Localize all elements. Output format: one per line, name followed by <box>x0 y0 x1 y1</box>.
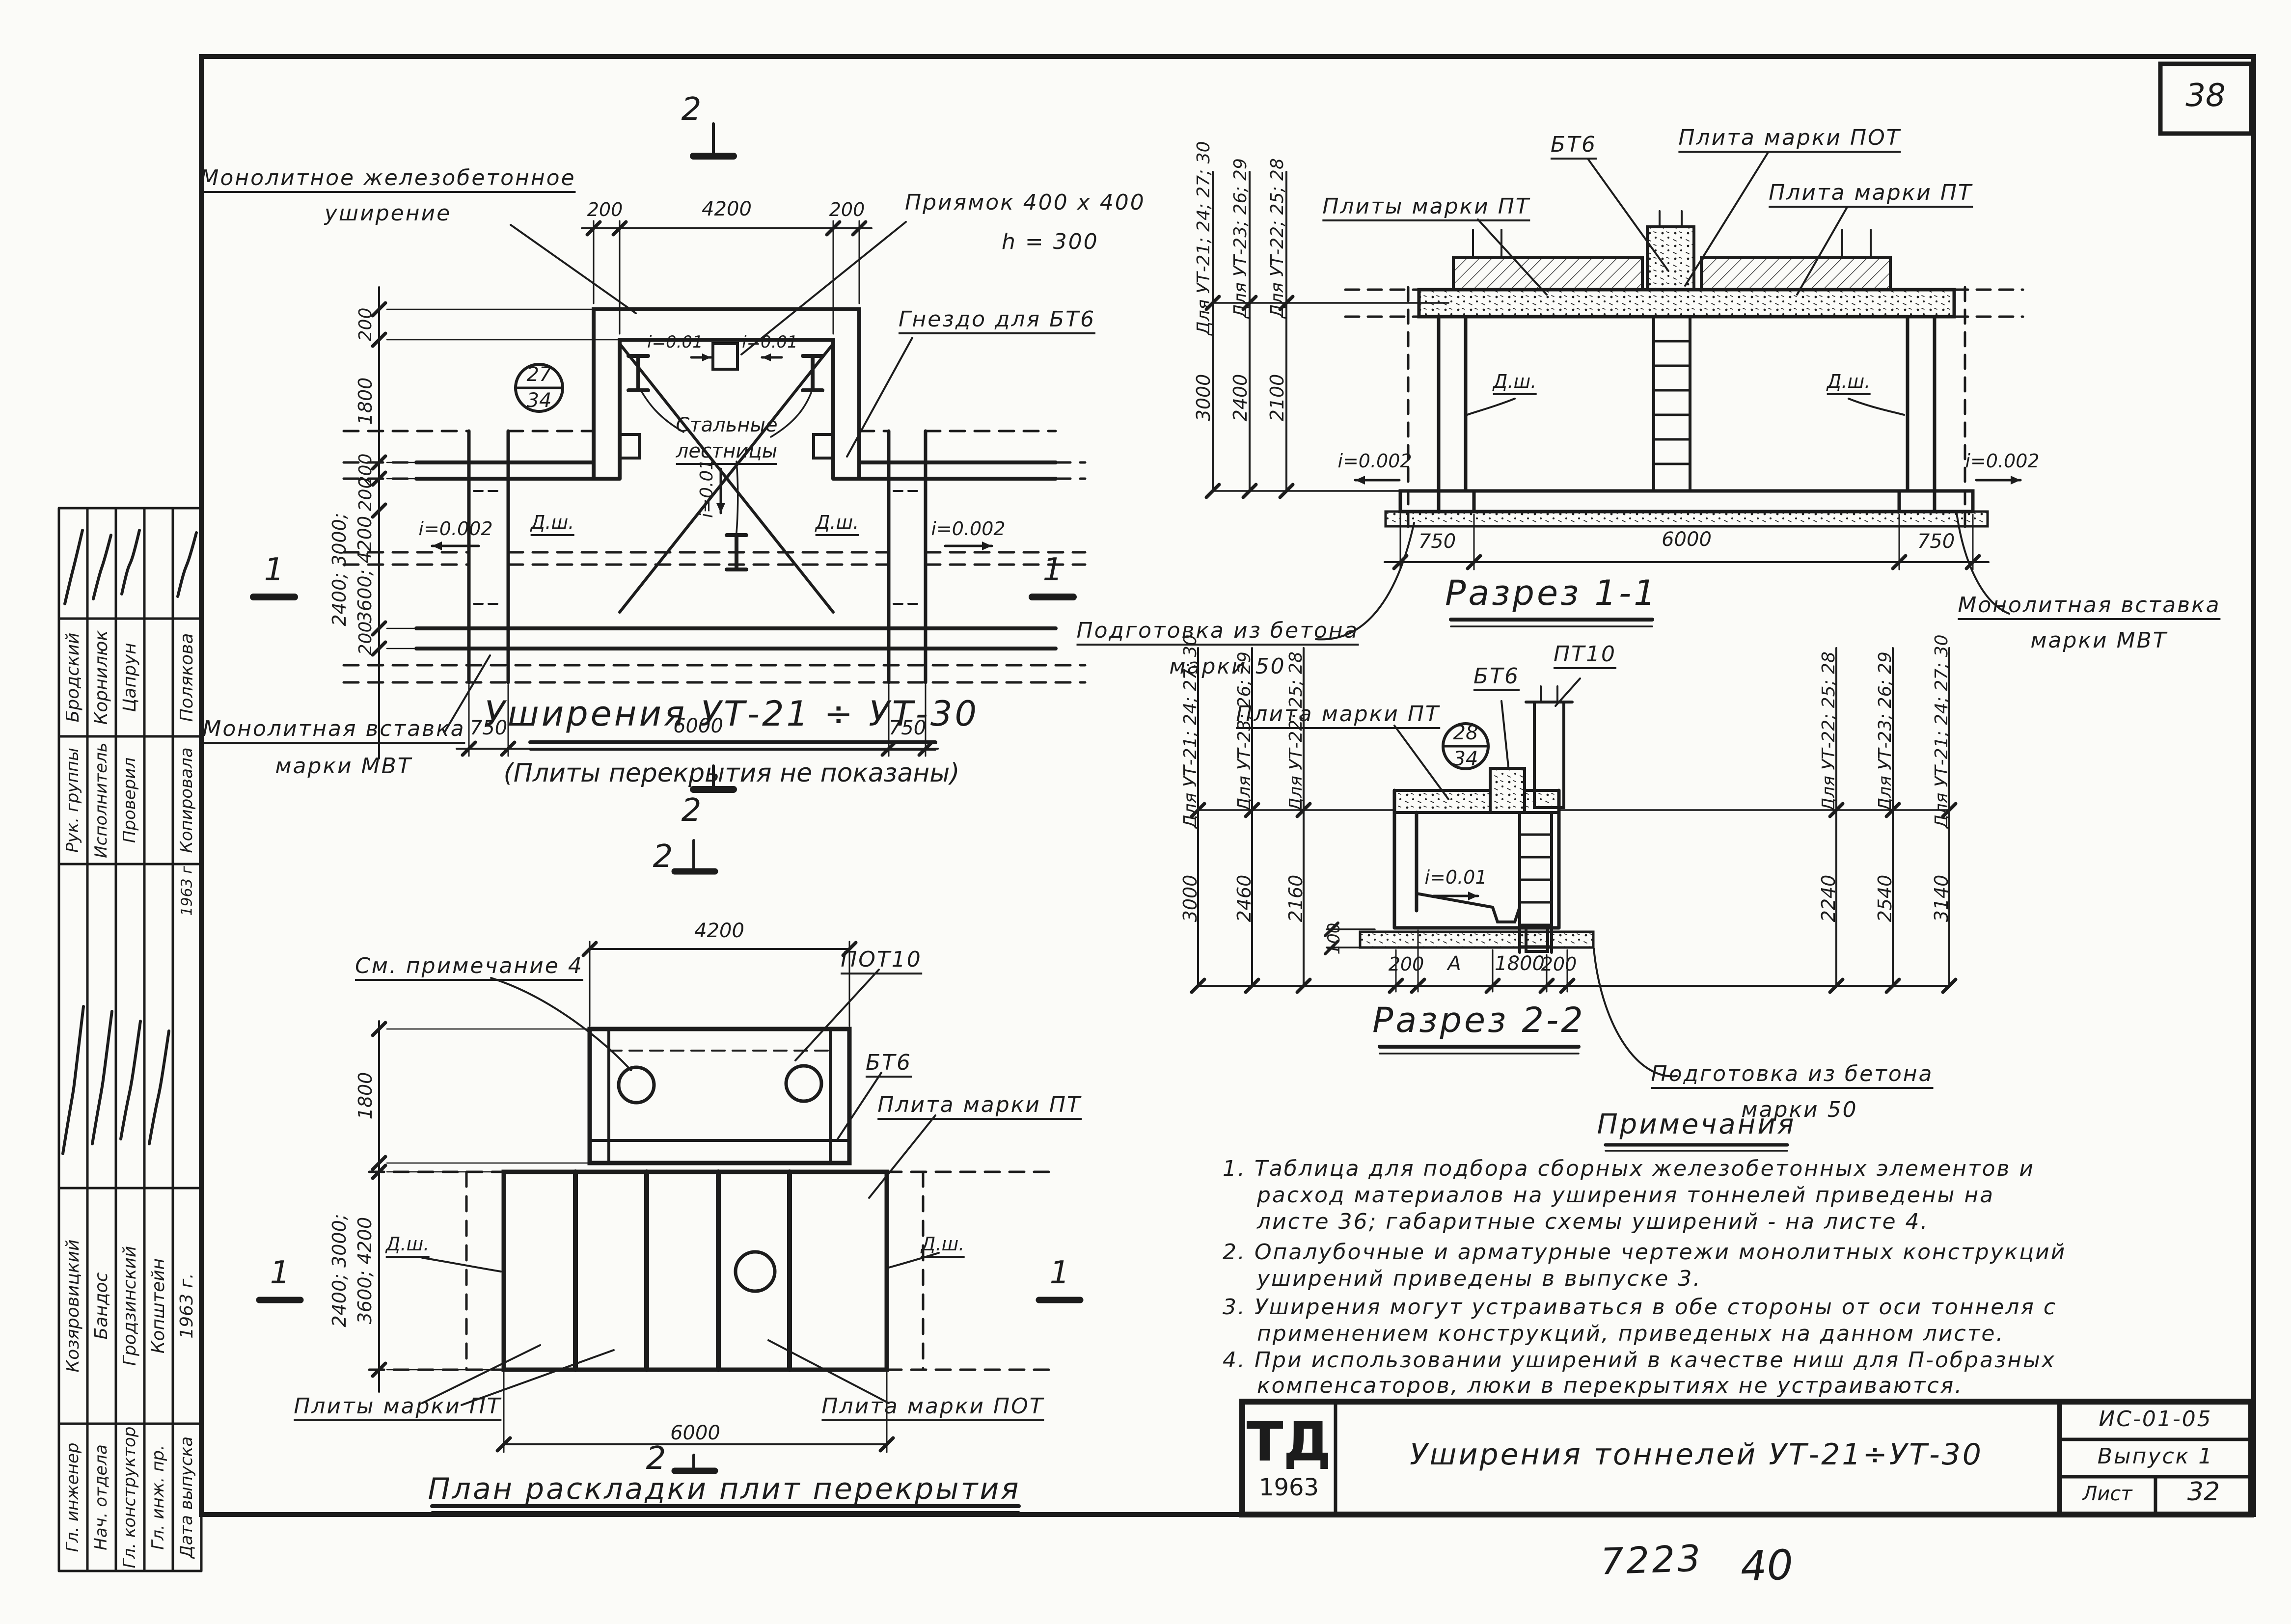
plan-dim-left-wall-top: 200 <box>356 308 375 342</box>
plan-insert-label-2: марки МВТ <box>275 755 412 778</box>
note-1-line-1: 1. Таблица для подбора сборных железобет… <box>1223 1158 2035 1180</box>
s11-grid-dim-3: 2100 <box>1268 374 1287 422</box>
plan-dim-left-wall3: 200 <box>356 478 375 512</box>
s22-grid-right-label-2: Для УТ-23; 26; 29 <box>1876 651 1895 812</box>
s22-dim-bottom-4: 200 <box>1541 955 1577 974</box>
slabplan-pot10-label: ПОТ10 <box>841 948 922 974</box>
slabplan-mark-top: 2 <box>653 840 673 873</box>
s11-insert-label-2: марки МВТ <box>2030 629 2167 652</box>
slabplan-pt-right-label: Плита марки ПТ <box>877 1094 1082 1120</box>
plan-title: Уширения УТ-21 ÷ УТ-30 <box>484 696 979 732</box>
stamp-role-chief-engineer: Гл. инженер <box>64 1443 82 1552</box>
stamp-name-kozyarovitsky: Козяровицкий <box>64 1240 82 1373</box>
note-1-line-3: листе 36; габаритные схемы уширений - на… <box>1257 1211 1929 1233</box>
slabplan-structure <box>504 1029 887 1370</box>
slabplan-mark-left: 1 <box>270 1257 290 1290</box>
s22-dim-bottom-1: 200 <box>1389 955 1424 974</box>
note-3-line-2: применением конструкций, приведеных на д… <box>1257 1323 2004 1345</box>
s11-bt6-label: БТ6 <box>1551 134 1597 160</box>
note-4-line-1: 4. При использовании уширений в качестве… <box>1223 1349 2056 1372</box>
slabplan-dim-left-top: 1800 <box>356 1072 376 1120</box>
s11-title: Разрез 1-1 <box>1445 575 1658 612</box>
note-1-line-2: расход материалов на уширения тоннелей п… <box>1257 1184 1994 1207</box>
slabplan-joint-right: Д.ш. <box>921 1235 965 1258</box>
plan-pit-slope-right: i=0.01 <box>742 334 798 352</box>
note-2-line-1: 2. Опалубочные и арматурные чертежи моно… <box>1223 1241 2066 1264</box>
s22-dim-bottom-2: А <box>1447 953 1461 974</box>
s11-pt-plural-label: Плиты марки ПТ <box>1322 195 1530 221</box>
stamp-name-tsaprun: Цапрун <box>121 643 139 712</box>
s11-dim-bottom-left: 750 <box>1418 531 1456 552</box>
slabplan-bt6-label: БТ6 <box>866 1052 912 1078</box>
plan-detail-circle-top: 27 <box>527 364 552 385</box>
stamp-role-checked: Проверил <box>121 758 139 843</box>
plan-dim-left-interior: 1800 <box>356 378 376 425</box>
s22-grid-left-label-1: Для УТ-21; 24; 27; 30 <box>1181 634 1200 828</box>
s22-grid-right-label-1: Для УТ-22; 25; 28 <box>1820 651 1838 812</box>
s11-grid-label-1: Для УТ-21; 24; 27; 30 <box>1195 141 1213 335</box>
s11-joint-left: Д.ш. <box>1493 372 1537 395</box>
s11-grid-dim-2: 2400 <box>1231 374 1251 422</box>
logo-year: 1963 <box>1259 1475 1319 1500</box>
plan-dimensions <box>373 221 938 758</box>
s22-slope: i=0.01 <box>1424 868 1487 888</box>
stamp-name-bandos: Бандос <box>92 1272 111 1339</box>
stamp-role-copied: Копировала <box>178 747 196 853</box>
slabplan-dashed <box>369 1172 1055 1370</box>
plan-subtitle: (Плиты перекрытия не показаны) <box>503 760 959 787</box>
plan-pit-label-1: Приямок 400 х 400 <box>905 191 1145 214</box>
s11-dim-bottom-mid: 6000 <box>1662 529 1712 550</box>
s11-grid-label-3: Для УТ-22; 25; 28 <box>1268 158 1287 318</box>
plan-detail-circle-bottom: 34 <box>527 390 552 411</box>
plan-dim-top-left: 200 <box>587 200 623 220</box>
plan-joint-left: Д.ш. <box>531 513 574 536</box>
plan-ladders-label-1: Стальные <box>676 415 777 435</box>
s22-detail-circle-top: 28 <box>1453 723 1478 743</box>
stamp-role-chief-designer: Гл. конструктор <box>121 1427 139 1569</box>
plan-slope-right: i=0.002 <box>931 519 1005 539</box>
s11-structure <box>1345 211 2023 528</box>
stamp-name-kornilyuk: Корнилюк <box>92 630 111 725</box>
s22-dim-bottom-3: 1800 <box>1495 953 1545 974</box>
slabplan-pot-bottom-label: Плита марки ПОТ <box>821 1395 1044 1421</box>
slabplan-dim-left-2: 3600; 4200 <box>355 1217 375 1324</box>
s22-grid-left-label-3: Для УТ-22; 25; 28 <box>1287 651 1306 812</box>
title-block-sheet-label: Лист <box>2082 1484 2132 1504</box>
plan-insert-label-1: Монолитная вставка <box>202 718 465 744</box>
s22-grid-right-dim-3: 3140 <box>1932 875 1952 922</box>
s11-grid-dim-1: 3000 <box>1194 374 1214 422</box>
slabplan-mark-right: 1 <box>1050 1257 1070 1290</box>
note-3-line-1: 3. Уширения могут устраиваться в обе сто… <box>1223 1296 2057 1319</box>
s22-grid-right-label-3: Для УТ-21; 24; 27; 30 <box>1933 634 1951 828</box>
stamp-date-top: 1963 г. <box>179 861 195 916</box>
plan-dim-top-mid: 4200 <box>702 199 752 219</box>
stamp-role-dept-head: Нач. отдела <box>93 1444 110 1550</box>
plan-widening-label-1: Монолитное железобетонное <box>200 167 575 193</box>
s11-slope-right: i=0.002 <box>1965 452 2039 471</box>
slabplan-note-label: См. примечание 4 <box>355 955 583 981</box>
note-2-line-2: уширений приведены в выпуске 3. <box>1257 1268 1701 1290</box>
s11-grid-label-2: Для УТ-23; 26; 29 <box>1231 158 1250 318</box>
s11-slope-arrows <box>1355 476 2020 485</box>
stamp-role-chief-proj-engineer: Гл. инж. пр. <box>150 1445 167 1549</box>
title-block-issue: Выпуск 1 <box>2098 1445 2213 1468</box>
s11-pot-label: Плита марки ПОТ <box>1678 127 1901 153</box>
slabplan-dimensions <box>373 942 893 1452</box>
plan-dim-top-right: 200 <box>829 200 865 220</box>
plan-pit-label-2: h = 300 <box>1002 231 1099 253</box>
plan-widening-label-2: уширение <box>325 202 451 225</box>
plan-pit-slope-left: i=0.01 <box>647 334 703 352</box>
sheet-code-bottom: 40 <box>1740 1543 1794 1588</box>
page-number: 38 <box>2185 80 2225 112</box>
s22-pt10-label: ПТ10 <box>1554 643 1616 669</box>
stamp-name-grodzinsky: Гродзинский <box>121 1246 139 1366</box>
s22-grid-left-dim-2: 2460 <box>1235 875 1255 922</box>
notes-underline <box>1606 1145 1787 1151</box>
s22-detail-circle-bottom: 34 <box>1453 749 1478 769</box>
slabplan-dim-left-1: 2400; 3000; <box>330 1214 350 1327</box>
plan-mark-bottom: 2 <box>682 794 702 827</box>
plan-ladders-label-2: лестницы <box>676 441 777 465</box>
s22-bt6-label: БТ6 <box>1473 665 1520 691</box>
logo-td: ТД <box>1246 1414 1331 1471</box>
s22-prep-label-1: Подготовка из бетона <box>1651 1063 1934 1089</box>
s22-title: Разрез 2-2 <box>1372 1002 1585 1039</box>
s22-grid-right-dim-1: 2240 <box>1819 875 1839 922</box>
plan-mark-top: 2 <box>682 93 702 126</box>
plan-joint-right: Д.ш. <box>816 513 859 536</box>
s22-grid-left-label-2: Для УТ-23; 26; 29 <box>1235 651 1254 812</box>
s11-pt-label: Плита марки ПТ <box>1769 182 1973 208</box>
slabplan-title: План раскладки плит перекрытия <box>428 1474 1020 1505</box>
title-block-code: ИС-01-05 <box>2099 1408 2212 1431</box>
slabplan-mark-bottom: 2 <box>646 1442 666 1475</box>
plan-dim-left-bottom: 200 <box>356 622 375 655</box>
title-block-sheet-number: 32 <box>2187 1479 2220 1506</box>
s22-pt-label: Плита марки ПТ <box>1236 703 1440 729</box>
stamp-role-executor: Исполнитель <box>93 742 110 858</box>
plan-mark-right: 1 <box>1043 554 1063 587</box>
plan-dim-left-tunnel-2: 3600; 4200 <box>355 516 375 623</box>
title-block-title: Уширения тоннелей УТ-21÷УТ-30 <box>1410 1439 1983 1470</box>
s22-grid-left-dim-3: 2160 <box>1286 875 1306 922</box>
s22-grid-right-dim-2: 2540 <box>1876 875 1895 922</box>
s22-dim-small-left: 100 <box>1326 923 1343 955</box>
s11-joint-right: Д.ш. <box>1827 372 1871 395</box>
plan-dim-left-tunnel-1: 2400; 3000; <box>330 513 350 626</box>
plan-socket-label: Гнездо для БТ6 <box>899 308 1095 334</box>
s11-slope-left: i=0.002 <box>1337 452 1412 471</box>
stamp-role-issue-date: Дата выпуска <box>178 1436 196 1558</box>
plan-mark-left: 1 <box>264 554 284 587</box>
stamp-role-group-leader: Рук. группы <box>64 748 82 853</box>
slabplan-joint-left: Д.ш. <box>386 1235 430 1258</box>
stamp-name-brodsky: Бродский <box>64 633 82 723</box>
doc-code-bottom: 7223 <box>1600 1540 1704 1581</box>
plan-slope-left: i=0.002 <box>418 519 492 539</box>
stamp-name-year: 1963 г. <box>178 1273 196 1338</box>
slabplan-pt-bottom-label: Плиты марки ПТ <box>294 1395 501 1421</box>
note-4-line-2: компенсаторов, люки в перекрытиях не уст… <box>1257 1375 1963 1397</box>
blueprint-sheet: { "sheet": { "page_number": "38", "doc_c… <box>0 0 2291 1624</box>
slabplan-dim-bottom: 6000 <box>670 1423 720 1443</box>
s11-dim-bottom-right: 750 <box>1917 531 1955 552</box>
s11-prep-label-1: Подготовка из бетона <box>1077 620 1359 646</box>
slabplan-dim-top: 4200 <box>694 920 744 941</box>
notes-title: Примечания <box>1597 1110 1796 1139</box>
stamp-name-polyakova: Полякова <box>178 633 196 722</box>
s22-grid-left-dim-1: 3000 <box>1181 875 1200 922</box>
s11-insert-label-1: Монолитная вставка <box>1958 594 2220 620</box>
plan-slope-center: i=0.01 <box>698 459 716 518</box>
slabplan-leaders <box>422 970 939 1405</box>
plan-leaders <box>422 222 912 1272</box>
stamp-name-kopshtein: Копштейн <box>149 1258 168 1353</box>
